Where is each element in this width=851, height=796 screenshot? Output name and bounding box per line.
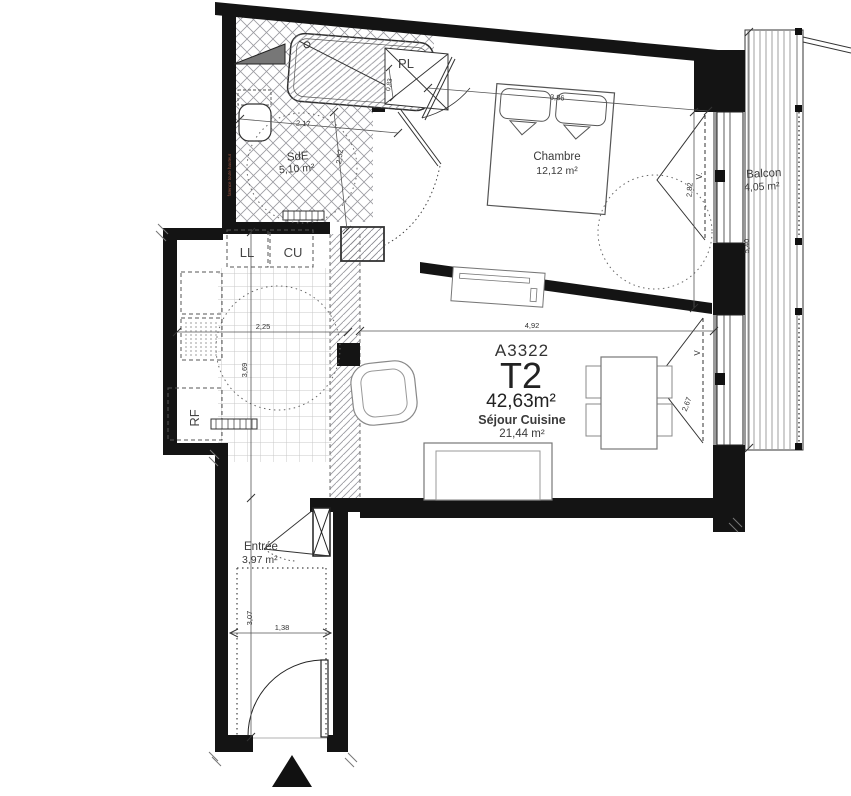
radiator-entree [211, 419, 257, 429]
dim-entree-width: 1,38 [275, 623, 290, 632]
kitchen-tile-floor [218, 268, 332, 462]
dim-kitchen-depth: 3,69 [240, 363, 249, 378]
wall-left-kitchen [163, 228, 177, 455]
window-sejour [713, 315, 743, 445]
wall-pier-mid [713, 243, 745, 315]
unit-total-area: 42,63m² [486, 391, 556, 412]
kitchen-unit-label: CU [284, 245, 303, 260]
sofa [424, 443, 552, 500]
window-chambre-label: V. [695, 173, 704, 180]
floor-plan: A3322 T2 42,63m² Séjour Cuisine 21,44 m²… [0, 0, 851, 796]
room-area-chambre: 12,12 m² [536, 165, 578, 177]
window-sejour-label: V [693, 350, 702, 356]
wall-corridor-right [333, 556, 348, 752]
towel-radiator [283, 211, 324, 220]
closet-label: PL [398, 56, 414, 71]
dim-chambre-width: 3,86 [550, 92, 565, 102]
wall-sde-bottom [222, 222, 330, 234]
room-label-entree: Entrée [244, 541, 278, 553]
chair [657, 404, 672, 436]
room-area-sde: 5,10 m² [279, 162, 316, 176]
chair [657, 366, 672, 398]
wall-bottom-left [215, 735, 253, 752]
room-area-sejour: 21,44 m² [499, 428, 545, 440]
unit-type: T2 [500, 355, 542, 396]
dim-balcon-length: 5,40 [742, 239, 751, 254]
wall-kitchen-step [163, 443, 228, 455]
dim-chambre-depth: 2,82 [685, 182, 695, 197]
pillow-left [499, 88, 551, 122]
structural-column [337, 343, 360, 366]
wall-pier-bottom [713, 445, 745, 532]
armchair [349, 359, 419, 427]
closet-pl [385, 48, 448, 110]
fridge-label: RF [187, 409, 202, 426]
bed [487, 84, 614, 215]
room-label-sejour: Séjour Cuisine [478, 413, 566, 427]
dining-table [601, 357, 657, 449]
sde-finish-note: faïence toute hauteur [227, 153, 232, 196]
dim-sde-width: 2,17 [296, 119, 311, 129]
room-label-balcon: Balcon [746, 167, 782, 181]
chair [586, 404, 601, 436]
room-area-entree: 3,97 m² [242, 554, 278, 566]
chair [586, 366, 601, 398]
dim-sejour-width: 4,92 [525, 321, 540, 330]
window-chambre [713, 112, 743, 243]
worktop-duct [341, 227, 384, 261]
wall-sejour-bottom [360, 498, 733, 518]
room-area-balcon: 4,05 m² [744, 180, 781, 194]
dim-kitchen-width: 2,25 [256, 322, 271, 331]
desk [451, 267, 545, 307]
floor-plan-page: A3322 T2 42,63m² Séjour Cuisine 21,44 m²… [0, 0, 851, 796]
washing-machine-label: LL [240, 245, 254, 260]
wall-corridor-left [215, 455, 228, 752]
wall-pier-top [694, 50, 745, 112]
dim-entree-depth: 3,07 [245, 611, 254, 626]
wall-door-jamb [333, 510, 348, 560]
wall-left-sde [222, 8, 236, 234]
room-label-chambre: Chambre [533, 151, 580, 163]
